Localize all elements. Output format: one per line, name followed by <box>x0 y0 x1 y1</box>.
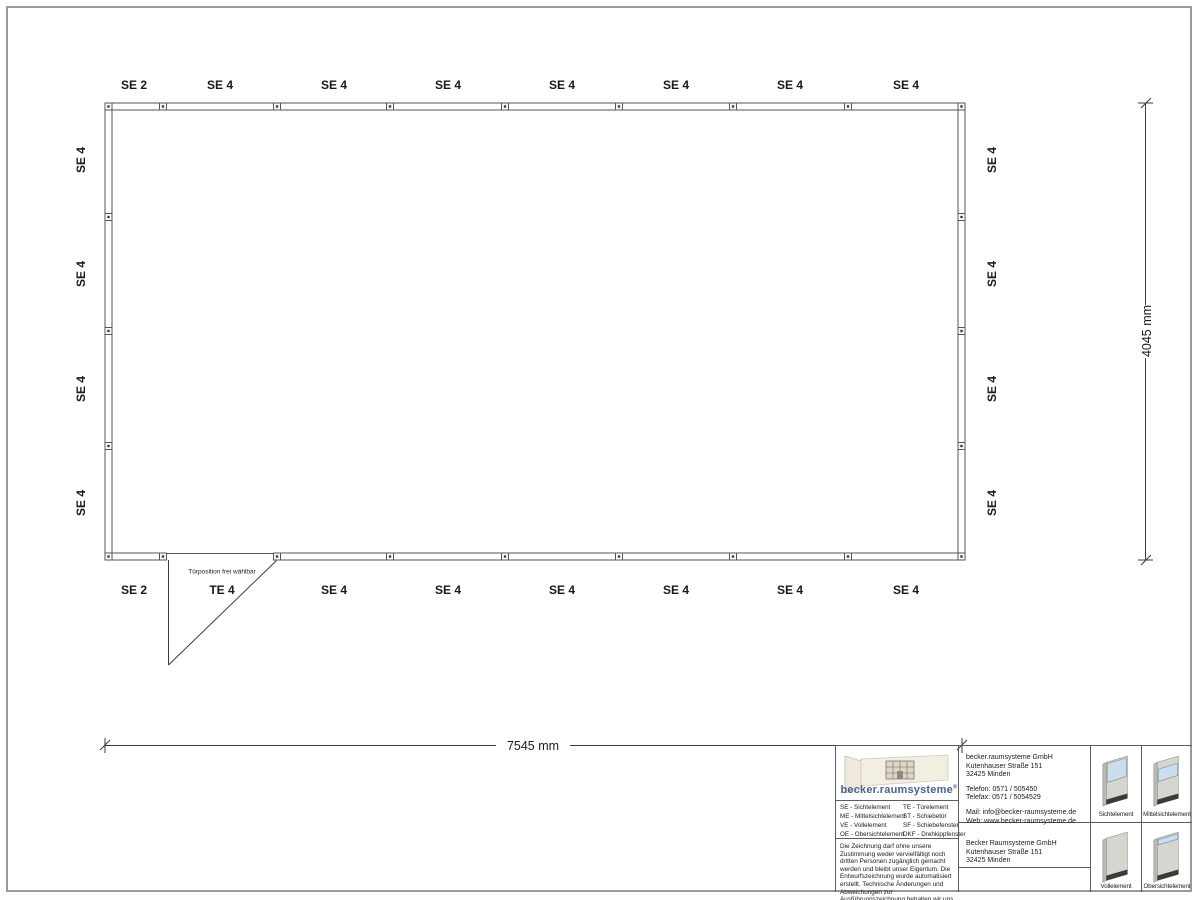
height-dimension-value: 4045 mm <box>1140 305 1154 357</box>
panel-label-bottom-1: SE 2 <box>121 583 147 597</box>
door-swing <box>169 560 277 665</box>
contact-block: becker.raumsysteme GmbH Kutenhauser Stra… <box>966 754 1076 826</box>
contact-phone-line: Telefax: 0571 / 5054529 <box>966 794 1076 803</box>
panel-label-bottom-3: SE 4 <box>321 583 347 597</box>
panel-label-bottom-8: SE 4 <box>893 583 919 597</box>
panel-label-bottom-4: SE 4 <box>435 583 461 597</box>
tile-caption-sichtelement: Sichtelement <box>1099 811 1134 818</box>
panel-label-bottom-7: SE 4 <box>777 583 803 597</box>
panel-label-bottom-5: SE 4 <box>549 583 575 597</box>
contact-company-line: becker.raumsysteme GmbH <box>966 754 1076 763</box>
legend-item: ST - Schiebetür <box>903 812 966 821</box>
drawing-sheet: SE 2 SE 4 SE 4 SE 4 SE 4 SE 4 SE 4 SE 4 … <box>0 0 1200 900</box>
panel-label-left-1: SE 4 <box>74 147 88 173</box>
panel-label-left-2: SE 4 <box>74 261 88 287</box>
tile-caption-vollelement: Vollelement <box>1101 883 1132 890</box>
contact-company-line: 32425 Minden <box>966 771 1076 780</box>
panel-label-left-3: SE 4 <box>74 376 88 402</box>
panel-label-right-3: SE 4 <box>985 376 999 402</box>
width-dimension-value: 7545 mm <box>507 739 559 753</box>
legend-item: OE - Obersichtelement <box>840 830 905 839</box>
address-line: Becker Raumsysteme GmbH <box>966 840 1057 849</box>
panel-label-top-8: SE 4 <box>893 78 919 92</box>
contact-mail-line: Mail: info@becker-raumsysteme.de <box>966 809 1076 818</box>
tile-caption-mittelsichtelement: Mittelsichtelement <box>1143 811 1191 818</box>
legend-item: SF - Schiebefenster <box>903 821 966 830</box>
panel-label-right-1: SE 4 <box>985 147 999 173</box>
address-line: Kutenhauser Straße 151 <box>966 849 1057 858</box>
legend-item: VE - Vollelement <box>840 821 905 830</box>
registered-mark: ® <box>953 784 958 790</box>
wall-outline <box>105 103 965 560</box>
legend-item: DKF - Drehkippfenster <box>903 830 966 839</box>
address-block: Becker Raumsysteme GmbH Kutenhauser Stra… <box>966 840 1057 866</box>
legend-item: ME - Mittelsichtelement <box>840 812 905 821</box>
panel-label-top-2: SE 4 <box>207 78 233 92</box>
contact-phone-line: Telefon: 0571 / 505450 <box>966 786 1076 795</box>
panel-label-top-3: SE 4 <box>321 78 347 92</box>
panel-label-left-4: SE 4 <box>74 490 88 516</box>
sichtelement-preview <box>1094 750 1138 808</box>
panel-label-top-5: SE 4 <box>549 78 575 92</box>
panel-label-right-2: SE 4 <box>985 261 999 287</box>
legend-item: SE - Sichtelement <box>840 803 905 812</box>
address-line: 32425 Minden <box>966 857 1057 866</box>
legend-item: TE - Türelement <box>903 803 966 812</box>
contact-company-line: Kutenhauser Straße 151 <box>966 763 1076 772</box>
panel-label-top-1: SE 2 <box>121 78 147 92</box>
door-position-note: Türposition frei wählbar <box>188 569 256 576</box>
mittelsichtelement-preview <box>1145 750 1189 808</box>
panel-label-top-6: SE 4 <box>663 78 689 92</box>
panel-label-top-7: SE 4 <box>777 78 803 92</box>
obersichtelement-preview <box>1145 826 1189 884</box>
vollelement-preview <box>1094 826 1138 884</box>
tile-caption-obersichtelement: Obersichtelement <box>1144 883 1191 890</box>
panel-label-right-4: SE 4 <box>985 490 999 516</box>
contact-web-line: Web: www.becker-raumsysteme.de <box>966 818 1076 827</box>
legend-column-2: TE - Türelement ST - Schiebetür SF - Sch… <box>903 803 966 839</box>
panel-joint-markers <box>105 103 965 560</box>
brand-name: becker.raumsysteme <box>840 784 952 796</box>
brand-logo-text: becker.raumsysteme® <box>840 784 957 796</box>
panel-label-bottom-6: SE 4 <box>663 583 689 597</box>
legend-column-1: SE - Sichtelement ME - Mittelsichtelemen… <box>840 803 905 839</box>
drawing-disclaimer: Die Zeichnung darf ohne unsere Zustimmun… <box>840 843 954 900</box>
panel-label-bottom-2: TE 4 <box>209 583 234 597</box>
panel-label-top-4: SE 4 <box>435 78 461 92</box>
